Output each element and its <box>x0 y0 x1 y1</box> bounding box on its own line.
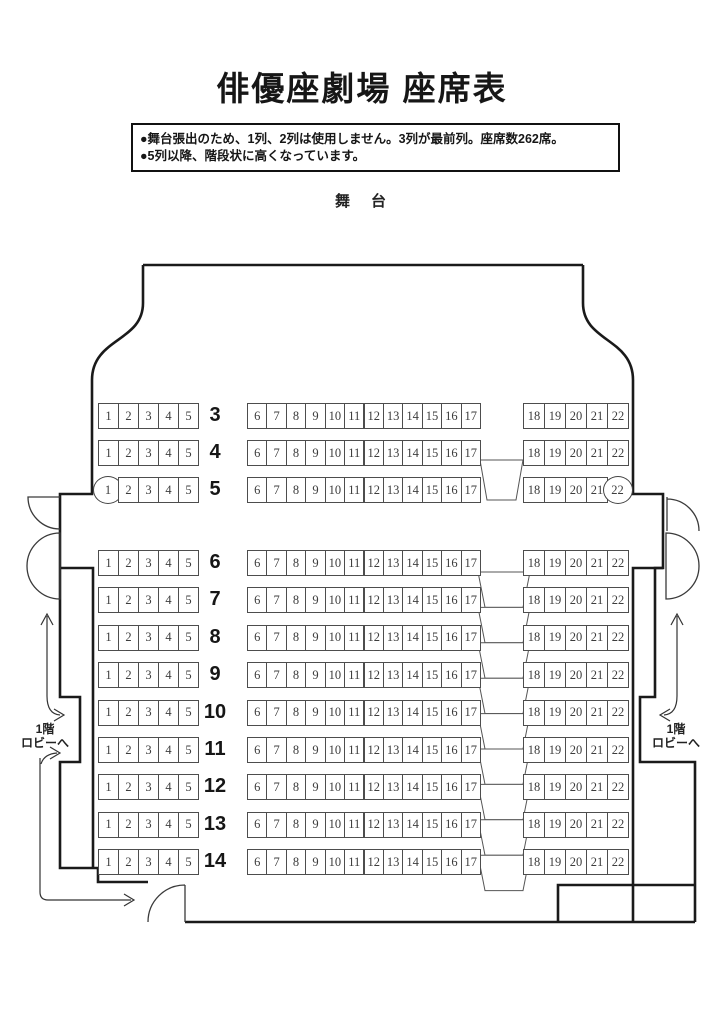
seat-row14-no13: 13 <box>383 849 403 875</box>
seat-row4-no16: 16 <box>441 440 461 466</box>
seat-row4-no3: 3 <box>138 440 159 466</box>
seat-row12-no16: 16 <box>441 774 461 800</box>
seat-row10-no11: 11 <box>344 700 364 726</box>
lobby-label-right-line1: 1階 <box>646 722 706 736</box>
lobby-label-right: 1階 ロビーへ <box>646 722 706 750</box>
seat-row9-no10: 10 <box>325 662 345 688</box>
seat-row12-no19: 19 <box>544 774 566 800</box>
seat-row8-no9: 9 <box>305 625 325 651</box>
seat-row3-no13: 13 <box>383 403 403 429</box>
seat-row12-no12: 12 <box>364 774 384 800</box>
seat-row11-no10: 10 <box>325 737 345 763</box>
seat-row9-no11: 11 <box>344 662 364 688</box>
seat-row6-no2: 2 <box>118 550 139 576</box>
seat-row4-no22: 22 <box>607 440 629 466</box>
seat-row13-no22: 22 <box>607 812 629 838</box>
seat-row6-no5: 5 <box>178 550 199 576</box>
seat-row10-no22: 22 <box>607 700 629 726</box>
seat-row4-no9: 9 <box>305 440 325 466</box>
seat-row10-no7: 7 <box>266 700 286 726</box>
door-arc-left-upper <box>28 497 60 529</box>
seat-row11-no8: 8 <box>286 737 306 763</box>
stair-boxes-bottom-right <box>558 885 695 922</box>
lobby-label-left: 1階 ロビーへ <box>15 722 75 750</box>
seat-row13-no8: 8 <box>286 812 306 838</box>
seat-row9-no14: 14 <box>402 662 422 688</box>
seat-row7-no7: 7 <box>266 587 286 613</box>
seat-row5-no15: 15 <box>422 477 442 503</box>
seat-row14-no22: 22 <box>607 849 629 875</box>
seat-row11-no22: 22 <box>607 737 629 763</box>
seat-row7-no8: 8 <box>286 587 306 613</box>
seat-row3-no16: 16 <box>441 403 461 429</box>
seat-row7-no9: 9 <box>305 587 325 613</box>
seat-row14-no18: 18 <box>523 849 545 875</box>
seat-row8-no3: 3 <box>138 625 159 651</box>
seat-row9-no9: 9 <box>305 662 325 688</box>
seat-row7-no21: 21 <box>586 587 608 613</box>
seat-row3-no20: 20 <box>565 403 587 429</box>
seat-row8-no18: 18 <box>523 625 545 651</box>
seat-row11-no17: 17 <box>461 737 481 763</box>
seat-row6-no16: 16 <box>441 550 461 576</box>
row-label-12: 12 <box>196 775 234 798</box>
seat-row4-no6: 6 <box>247 440 267 466</box>
row-label-9: 9 <box>196 663 234 686</box>
seat-row13-no19: 19 <box>544 812 566 838</box>
seat-row6-no1: 1 <box>98 550 119 576</box>
seat-row3-no5: 5 <box>178 403 199 429</box>
seat-row13-no11: 11 <box>344 812 364 838</box>
seat-row12-no4: 4 <box>158 774 179 800</box>
seat-row12-no9: 9 <box>305 774 325 800</box>
seat-row10-no8: 8 <box>286 700 306 726</box>
seat-row13-no7: 7 <box>266 812 286 838</box>
row-label-6: 6 <box>196 551 234 574</box>
seat-row7-no17: 17 <box>461 587 481 613</box>
lobby-label-right-line2: ロビーへ <box>646 736 706 750</box>
seat-row9-no12: 12 <box>364 662 384 688</box>
seat-row8-no8: 8 <box>286 625 306 651</box>
seat-row3-no8: 8 <box>286 403 306 429</box>
seat-row5-no13: 13 <box>383 477 403 503</box>
seat-row3-no1: 1 <box>98 403 119 429</box>
seat-row3-no10: 10 <box>325 403 345 429</box>
seat-row9-no15: 15 <box>422 662 442 688</box>
seat-row8-no1: 1 <box>98 625 119 651</box>
seat-row11-no19: 19 <box>544 737 566 763</box>
seat-row11-no14: 14 <box>402 737 422 763</box>
seat-row6-no18: 18 <box>523 550 545 576</box>
stair-step-front <box>480 460 523 500</box>
seat-row12-no14: 14 <box>402 774 422 800</box>
seat-row5-no22: 22 <box>603 476 633 504</box>
seat-row4-no15: 15 <box>422 440 442 466</box>
row-label-8: 8 <box>196 626 234 649</box>
seat-row8-no19: 19 <box>544 625 566 651</box>
seat-row7-no3: 3 <box>138 587 159 613</box>
seat-row6-no19: 19 <box>544 550 566 576</box>
seat-row14-no14: 14 <box>402 849 422 875</box>
seat-row5-no11: 11 <box>344 477 364 503</box>
seat-row7-no1: 1 <box>98 587 119 613</box>
seat-row14-no6: 6 <box>247 849 267 875</box>
seat-row14-no1: 1 <box>98 849 119 875</box>
row-label-7: 7 <box>196 588 234 611</box>
seat-row6-no12: 12 <box>364 550 384 576</box>
seat-row6-no6: 6 <box>247 550 267 576</box>
seat-row14-no11: 11 <box>344 849 364 875</box>
seat-chart-page: 俳優座劇場 座席表 ●舞台張出のため、1列、2列は使用しません。3列が最前列。座… <box>0 0 724 1024</box>
seat-row11-no15: 15 <box>422 737 442 763</box>
seat-row14-no16: 16 <box>441 849 461 875</box>
seat-row10-no19: 19 <box>544 700 566 726</box>
seat-row7-no13: 13 <box>383 587 403 613</box>
seat-row8-no4: 4 <box>158 625 179 651</box>
seat-row7-no12: 12 <box>364 587 384 613</box>
seat-row8-no7: 7 <box>266 625 286 651</box>
seat-row10-no4: 4 <box>158 700 179 726</box>
seat-row9-no4: 4 <box>158 662 179 688</box>
seat-row10-no21: 21 <box>586 700 608 726</box>
seat-row10-no2: 2 <box>118 700 139 726</box>
seat-row9-no8: 8 <box>286 662 306 688</box>
seat-row14-no20: 20 <box>565 849 587 875</box>
seat-row4-no14: 14 <box>402 440 422 466</box>
seat-row3-no3: 3 <box>138 403 159 429</box>
seat-row9-no21: 21 <box>586 662 608 688</box>
seat-row9-no7: 7 <box>266 662 286 688</box>
seat-row8-no10: 10 <box>325 625 345 651</box>
seat-row6-no22: 22 <box>607 550 629 576</box>
seat-row8-no14: 14 <box>402 625 422 651</box>
seat-row7-no11: 11 <box>344 587 364 613</box>
seat-row7-no22: 22 <box>607 587 629 613</box>
seat-row7-no6: 6 <box>247 587 267 613</box>
seat-row13-no17: 17 <box>461 812 481 838</box>
seat-row13-no10: 10 <box>325 812 345 838</box>
seat-row14-no19: 19 <box>544 849 566 875</box>
seat-row3-no17: 17 <box>461 403 481 429</box>
seat-row5-no10: 10 <box>325 477 345 503</box>
seat-row9-no18: 18 <box>523 662 545 688</box>
lobby-label-left-line1: 1階 <box>15 722 75 736</box>
seat-row12-no22: 22 <box>607 774 629 800</box>
row-label-3: 3 <box>196 404 234 427</box>
door-arc-right-upper <box>667 497 699 531</box>
seat-row9-no22: 22 <box>607 662 629 688</box>
row-label-11: 11 <box>196 738 234 761</box>
row-label-4: 4 <box>196 441 234 464</box>
seat-row5-no5: 5 <box>178 477 199 503</box>
seat-row6-no10: 10 <box>325 550 345 576</box>
seat-row13-no18: 18 <box>523 812 545 838</box>
row-label-5: 5 <box>196 478 234 501</box>
seat-row11-no12: 12 <box>364 737 384 763</box>
seat-row13-no6: 6 <box>247 812 267 838</box>
seat-row14-no21: 21 <box>586 849 608 875</box>
seat-row6-no17: 17 <box>461 550 481 576</box>
seat-row13-no5: 5 <box>178 812 199 838</box>
seat-row8-no16: 16 <box>441 625 461 651</box>
seat-row3-no22: 22 <box>607 403 629 429</box>
seat-row12-no21: 21 <box>586 774 608 800</box>
seat-row9-no6: 6 <box>247 662 267 688</box>
seat-row14-no17: 17 <box>461 849 481 875</box>
seat-row4-no13: 13 <box>383 440 403 466</box>
seat-row12-no2: 2 <box>118 774 139 800</box>
seat-row5-no12: 12 <box>364 477 384 503</box>
seat-row8-no15: 15 <box>422 625 442 651</box>
seat-row10-no10: 10 <box>325 700 345 726</box>
seat-row6-no11: 11 <box>344 550 364 576</box>
seat-row12-no15: 15 <box>422 774 442 800</box>
seat-row5-no9: 9 <box>305 477 325 503</box>
seat-row4-no12: 12 <box>364 440 384 466</box>
seat-row4-no10: 10 <box>325 440 345 466</box>
seat-row14-no15: 15 <box>422 849 442 875</box>
seat-row12-no5: 5 <box>178 774 199 800</box>
seat-row9-no13: 13 <box>383 662 403 688</box>
seat-row7-no5: 5 <box>178 587 199 613</box>
seat-row3-no2: 2 <box>118 403 139 429</box>
seat-row4-no17: 17 <box>461 440 481 466</box>
seat-row11-no2: 2 <box>118 737 139 763</box>
seat-row5-no17: 17 <box>461 477 481 503</box>
seat-row4-no2: 2 <box>118 440 139 466</box>
seat-row11-no5: 5 <box>178 737 199 763</box>
seat-row3-no15: 15 <box>422 403 442 429</box>
seat-row5-no7: 7 <box>266 477 286 503</box>
seat-row14-no5: 5 <box>178 849 199 875</box>
seat-row5-no19: 19 <box>544 477 566 503</box>
seat-row12-no10: 10 <box>325 774 345 800</box>
seat-row4-no21: 21 <box>586 440 608 466</box>
seat-row14-no8: 8 <box>286 849 306 875</box>
seat-row3-no11: 11 <box>344 403 364 429</box>
seat-row14-no9: 9 <box>305 849 325 875</box>
seat-row13-no1: 1 <box>98 812 119 838</box>
seat-row5-no4: 4 <box>158 477 179 503</box>
seat-row11-no6: 6 <box>247 737 267 763</box>
seat-row14-no10: 10 <box>325 849 345 875</box>
seat-row8-no6: 6 <box>247 625 267 651</box>
seat-row3-no18: 18 <box>523 403 545 429</box>
seat-row12-no6: 6 <box>247 774 267 800</box>
seat-row5-no6: 6 <box>247 477 267 503</box>
seat-row7-no4: 4 <box>158 587 179 613</box>
seat-row10-no6: 6 <box>247 700 267 726</box>
seat-row11-no1: 1 <box>98 737 119 763</box>
seat-row14-no3: 3 <box>138 849 159 875</box>
seat-row6-no3: 3 <box>138 550 159 576</box>
seat-row7-no14: 14 <box>402 587 422 613</box>
seat-row8-no21: 21 <box>586 625 608 651</box>
seat-row14-no2: 2 <box>118 849 139 875</box>
seat-row12-no7: 7 <box>266 774 286 800</box>
seat-row8-no12: 12 <box>364 625 384 651</box>
seat-row12-no13: 13 <box>383 774 403 800</box>
seat-row6-no14: 14 <box>402 550 422 576</box>
seat-row10-no5: 5 <box>178 700 199 726</box>
seat-row13-no14: 14 <box>402 812 422 838</box>
seat-row12-no18: 18 <box>523 774 545 800</box>
seat-row13-no2: 2 <box>118 812 139 838</box>
seat-row8-no5: 5 <box>178 625 199 651</box>
seat-row10-no18: 18 <box>523 700 545 726</box>
seat-row7-no19: 19 <box>544 587 566 613</box>
seat-row10-no1: 1 <box>98 700 119 726</box>
seat-row8-no11: 11 <box>344 625 364 651</box>
seat-row9-no20: 20 <box>565 662 587 688</box>
door-arc-bottom-left <box>148 885 185 922</box>
seat-row11-no20: 20 <box>565 737 587 763</box>
seat-row9-no19: 19 <box>544 662 566 688</box>
seat-row10-no9: 9 <box>305 700 325 726</box>
seat-row11-no9: 9 <box>305 737 325 763</box>
seat-row13-no21: 21 <box>586 812 608 838</box>
seat-row11-no18: 18 <box>523 737 545 763</box>
lobby-arrow-right-shaft <box>664 616 677 715</box>
seat-row5-no16: 16 <box>441 477 461 503</box>
seat-row4-no20: 20 <box>565 440 587 466</box>
seat-row7-no15: 15 <box>422 587 442 613</box>
seat-row8-no17: 17 <box>461 625 481 651</box>
seat-row4-no4: 4 <box>158 440 179 466</box>
seat-row7-no20: 20 <box>565 587 587 613</box>
seat-row10-no15: 15 <box>422 700 442 726</box>
seat-row3-no19: 19 <box>544 403 566 429</box>
seat-row13-no13: 13 <box>383 812 403 838</box>
door-arc-right-lower <box>666 533 699 599</box>
lobby-arrow-left-shaft <box>47 616 60 715</box>
seat-row3-no9: 9 <box>305 403 325 429</box>
seat-row4-no19: 19 <box>544 440 566 466</box>
seat-row12-no3: 3 <box>138 774 159 800</box>
seat-row11-no13: 13 <box>383 737 403 763</box>
seat-row13-no4: 4 <box>158 812 179 838</box>
seat-row13-no9: 9 <box>305 812 325 838</box>
seat-row6-no7: 7 <box>266 550 286 576</box>
seat-row4-no11: 11 <box>344 440 364 466</box>
seat-row4-no5: 5 <box>178 440 199 466</box>
row-label-14: 14 <box>196 850 234 873</box>
wall-left-inner <box>60 568 93 868</box>
seat-row3-no14: 14 <box>402 403 422 429</box>
seat-row12-no11: 11 <box>344 774 364 800</box>
seat-row6-no20: 20 <box>565 550 587 576</box>
seat-row10-no13: 13 <box>383 700 403 726</box>
seat-row5-no8: 8 <box>286 477 306 503</box>
seat-row14-no12: 12 <box>364 849 384 875</box>
seat-row3-no21: 21 <box>586 403 608 429</box>
seat-row6-no13: 13 <box>383 550 403 576</box>
seat-row9-no17: 17 <box>461 662 481 688</box>
seat-row11-no4: 4 <box>158 737 179 763</box>
seat-row5-no2: 2 <box>118 477 139 503</box>
seat-row13-no3: 3 <box>138 812 159 838</box>
seat-row4-no7: 7 <box>266 440 286 466</box>
seat-row13-no15: 15 <box>422 812 442 838</box>
seat-row8-no20: 20 <box>565 625 587 651</box>
seat-row9-no1: 1 <box>98 662 119 688</box>
seat-row11-no7: 7 <box>266 737 286 763</box>
seat-row9-no5: 5 <box>178 662 199 688</box>
seat-row8-no22: 22 <box>607 625 629 651</box>
seat-row10-no12: 12 <box>364 700 384 726</box>
seat-row7-no18: 18 <box>523 587 545 613</box>
seat-row12-no1: 1 <box>98 774 119 800</box>
seat-row5-no14: 14 <box>402 477 422 503</box>
seat-row9-no2: 2 <box>118 662 139 688</box>
seat-row4-no1: 1 <box>98 440 119 466</box>
seat-row6-no4: 4 <box>158 550 179 576</box>
seat-row6-no8: 8 <box>286 550 306 576</box>
seat-row10-no3: 3 <box>138 700 159 726</box>
seat-row10-no16: 16 <box>441 700 461 726</box>
seat-row10-no20: 20 <box>565 700 587 726</box>
seat-row12-no17: 17 <box>461 774 481 800</box>
seat-row5-no20: 20 <box>565 477 587 503</box>
seat-row13-no12: 12 <box>364 812 384 838</box>
seat-row8-no2: 2 <box>118 625 139 651</box>
seat-row3-no7: 7 <box>266 403 286 429</box>
seat-row5-no3: 3 <box>138 477 159 503</box>
row-label-13: 13 <box>196 813 234 836</box>
seat-row7-no2: 2 <box>118 587 139 613</box>
seat-row8-no13: 13 <box>383 625 403 651</box>
seat-row6-no15: 15 <box>422 550 442 576</box>
seat-row11-no11: 11 <box>344 737 364 763</box>
lobby-label-left-line2: ロビーへ <box>15 736 75 750</box>
seat-row3-no4: 4 <box>158 403 179 429</box>
seat-row3-no6: 6 <box>247 403 267 429</box>
seat-row14-no4: 4 <box>158 849 179 875</box>
seat-row10-no14: 14 <box>402 700 422 726</box>
seat-row10-no17: 17 <box>461 700 481 726</box>
seat-row11-no16: 16 <box>441 737 461 763</box>
seat-row13-no20: 20 <box>565 812 587 838</box>
seat-row4-no8: 8 <box>286 440 306 466</box>
seat-row14-no7: 7 <box>266 849 286 875</box>
seat-row12-no8: 8 <box>286 774 306 800</box>
seat-row7-no10: 10 <box>325 587 345 613</box>
seat-row9-no3: 3 <box>138 662 159 688</box>
seat-row6-no9: 9 <box>305 550 325 576</box>
seat-row6-no21: 21 <box>586 550 608 576</box>
seat-row11-no3: 3 <box>138 737 159 763</box>
seat-row12-no20: 20 <box>565 774 587 800</box>
seat-row3-no12: 12 <box>364 403 384 429</box>
seat-row13-no16: 16 <box>441 812 461 838</box>
seat-row7-no16: 16 <box>441 587 461 613</box>
seat-row4-no18: 18 <box>523 440 545 466</box>
row-label-10: 10 <box>196 701 234 724</box>
door-arc-left-lower <box>27 533 60 599</box>
seat-row9-no16: 16 <box>441 662 461 688</box>
seat-row5-no18: 18 <box>523 477 545 503</box>
seat-row11-no21: 21 <box>586 737 608 763</box>
